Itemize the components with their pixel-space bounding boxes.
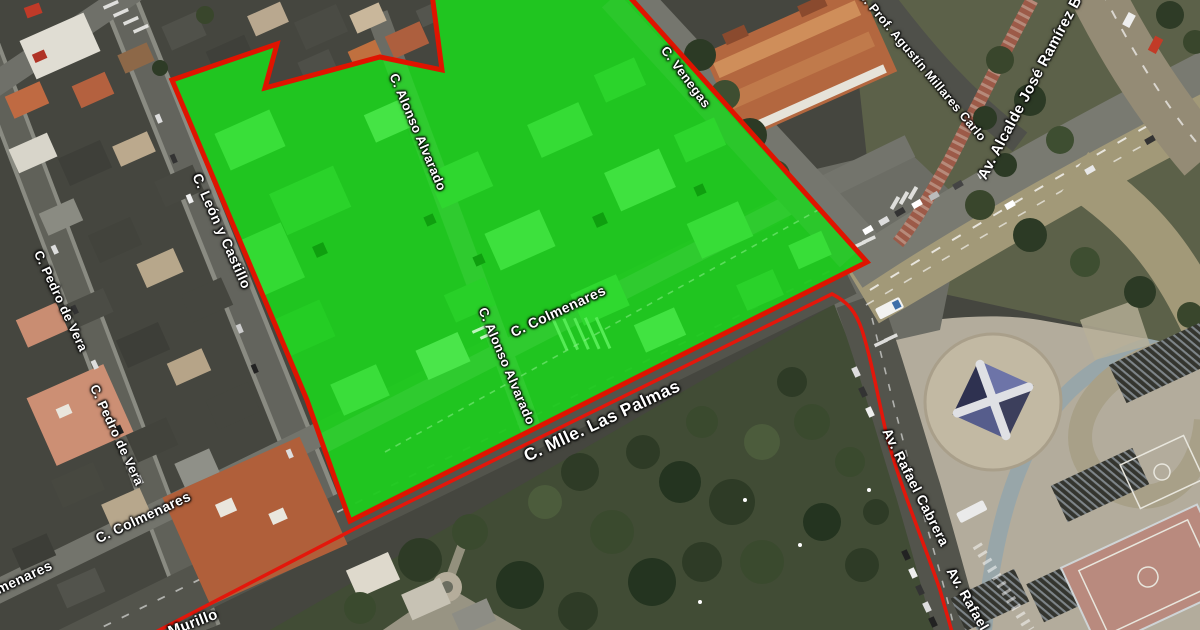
satellite-map[interactable]: C. León y Castillo C. Pedro de Vera C. P… bbox=[0, 0, 1200, 630]
map-canvas bbox=[0, 0, 1200, 630]
pyramid-kiosk bbox=[925, 334, 1061, 470]
